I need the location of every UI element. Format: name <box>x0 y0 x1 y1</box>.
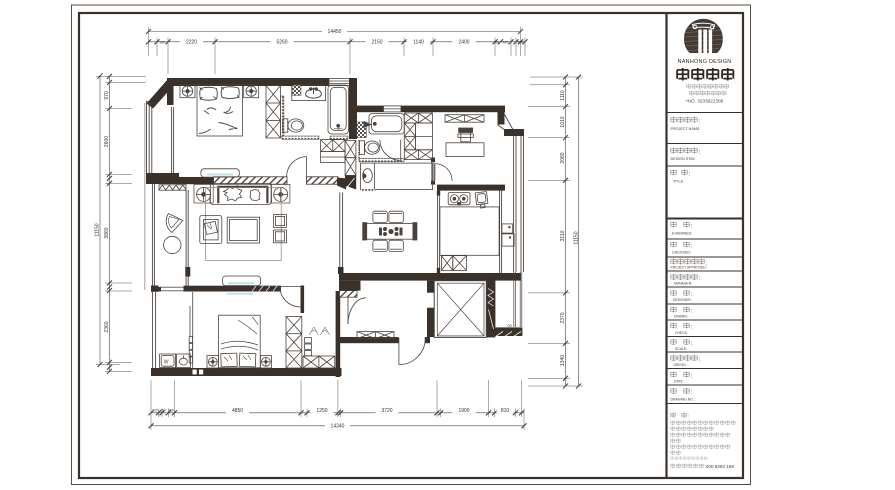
svg-text:1140: 1140 <box>413 40 424 46</box>
svg-text:14340: 14340 <box>331 423 345 429</box>
svg-text:CHECKED:: CHECKED: <box>672 251 691 255</box>
svg-text:DESIGNER:: DESIGNER: <box>673 298 692 302</box>
svg-text:11150: 11150 <box>574 231 580 244</box>
svg-text:DRAWN:: DRAWN: <box>674 315 688 319</box>
svg-text:DRAWING NO. :: DRAWING NO. : <box>671 398 696 402</box>
svg-text:2360: 2360 <box>104 321 110 332</box>
svg-text:SCALE:: SCALE: <box>675 347 687 351</box>
svg-text:14450: 14450 <box>328 29 342 35</box>
svg-text:160: 160 <box>159 40 165 44</box>
svg-text:3720: 3720 <box>381 408 392 414</box>
svg-text:2150: 2150 <box>371 40 382 46</box>
svg-text:11150: 11150 <box>95 223 101 236</box>
svg-text:1110: 1110 <box>560 90 566 101</box>
svg-text:2600: 2600 <box>104 136 110 147</box>
svg-text:60: 60 <box>495 40 499 44</box>
svg-text:EXAMINED:: EXAMINED: <box>672 232 692 236</box>
svg-text:970: 970 <box>104 91 110 100</box>
svg-text:4850: 4850 <box>232 408 243 414</box>
svg-text:DESIGN ITEM:: DESIGN ITEM: <box>671 157 696 161</box>
svg-text:JOB NO. :: JOB NO. : <box>673 363 689 367</box>
svg-text:200: 200 <box>152 408 158 412</box>
svg-text:5260: 5260 <box>276 40 287 46</box>
svg-text:1250: 1250 <box>316 408 327 414</box>
svg-text:180: 180 <box>168 408 174 412</box>
svg-text:1340: 1340 <box>560 355 566 366</box>
svg-text:2080: 2080 <box>560 152 566 163</box>
svg-text:NANHONG DESIGN: NANHONG DESIGN <box>678 59 732 65</box>
svg-text:W: W <box>164 360 169 366</box>
svg-text:1010: 1010 <box>560 116 566 127</box>
svg-text:00: 00 <box>508 324 512 328</box>
svg-text:3110: 3110 <box>560 230 566 241</box>
svg-text:2400: 2400 <box>458 40 469 46</box>
svg-text:2220: 2220 <box>186 40 197 46</box>
svg-text:*NO. 3233021306: *NO. 3233021306 <box>686 99 724 104</box>
svg-text:1900: 1900 <box>458 408 469 414</box>
svg-text:MANAGER:: MANAGER: <box>674 282 692 286</box>
svg-text:810: 810 <box>501 408 510 414</box>
svg-text::400 8363 168: :400 8363 168 <box>705 464 735 469</box>
svg-text:150: 150 <box>160 408 166 412</box>
svg-text:2370: 2370 <box>560 312 566 323</box>
svg-text:TITLE:: TITLE: <box>673 180 684 184</box>
svg-text:DATE:: DATE: <box>674 380 684 384</box>
svg-text:CHECK:: CHECK: <box>675 331 688 335</box>
svg-text:3860: 3860 <box>104 227 110 238</box>
svg-text::: : <box>688 414 689 420</box>
svg-text:440: 440 <box>503 40 509 44</box>
svg-text:PROJECT NAME:: PROJECT NAME: <box>671 127 701 131</box>
svg-text:PROJECT APPROVED:: PROJECT APPROVED: <box>671 266 707 270</box>
